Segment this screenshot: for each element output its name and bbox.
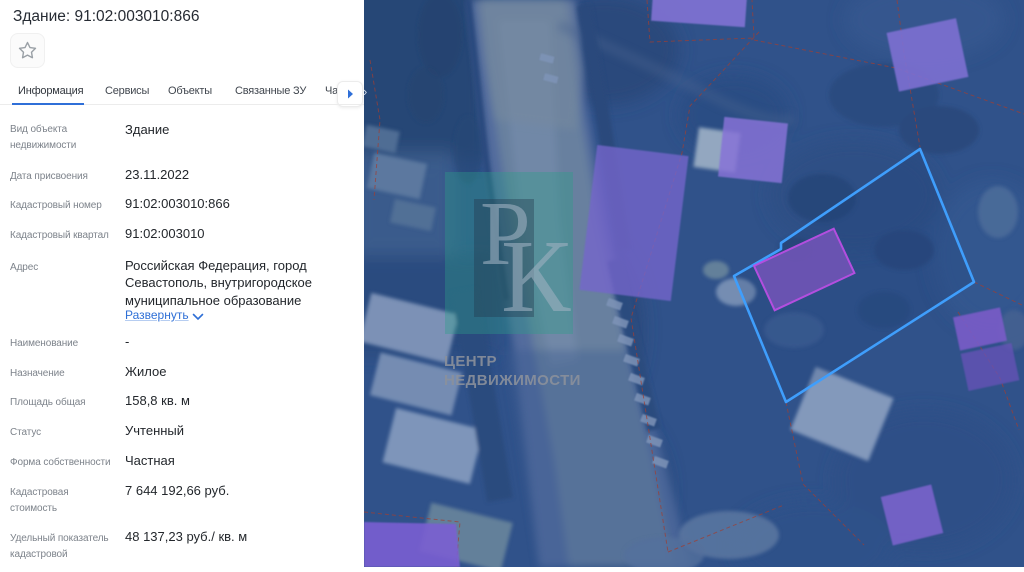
svg-text:НЕДВИЖИМОСТИ: НЕДВИЖИМОСТИ [444,372,581,389]
svg-text:ЦЕНТР: ЦЕНТР [444,353,497,370]
svg-text:›: › [364,84,367,99]
svg-text:К: К [501,219,571,334]
